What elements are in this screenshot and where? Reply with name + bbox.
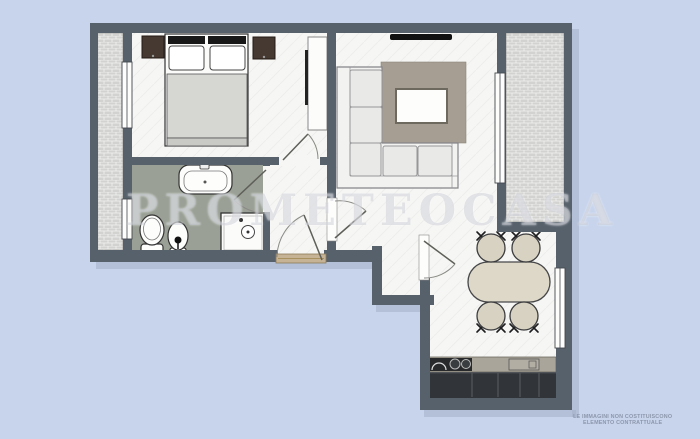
bedroom-balcony-window — [122, 62, 132, 128]
wardrobe — [305, 37, 327, 130]
disclaimer-line2: ELEMENTO CONTRATTUALE — [573, 419, 672, 425]
dining-chair — [477, 302, 505, 332]
bed — [165, 34, 248, 146]
kitchen-sink — [509, 359, 539, 370]
nightstand-left — [142, 36, 164, 58]
bathroom-sink — [179, 162, 232, 194]
disclaimer-text: LE IMMAGINI NON COSTITUISCONO ELEMENTO C… — [573, 413, 672, 425]
tv — [390, 34, 452, 40]
kitchen-window — [555, 268, 565, 348]
bathroom-doorway — [263, 166, 270, 212]
nightstand-right — [253, 37, 275, 59]
living-room-balcony-window — [495, 73, 505, 183]
dining-table — [468, 262, 550, 302]
dining-chair — [510, 302, 538, 332]
right-balcony — [506, 33, 564, 222]
dining-chair — [512, 232, 540, 262]
dining-chair — [477, 232, 505, 262]
coffee-table — [396, 89, 447, 123]
kitchen-counter — [428, 357, 556, 398]
toilet — [140, 215, 164, 256]
floorplan-image: PROMETEOCASA LE IMMAGINI NON COSTITUISCO… — [0, 0, 700, 439]
shower — [221, 213, 265, 253]
left-balcony — [96, 33, 123, 250]
bathroom-balcony-window — [122, 199, 132, 239]
entry-threshold — [276, 254, 326, 263]
hallway-floor — [266, 155, 327, 262]
floorplan-drawing — [0, 0, 700, 439]
base-cabinets — [428, 372, 556, 398]
living-room-doorway — [327, 198, 337, 241]
bedroom-doorway — [279, 155, 320, 166]
